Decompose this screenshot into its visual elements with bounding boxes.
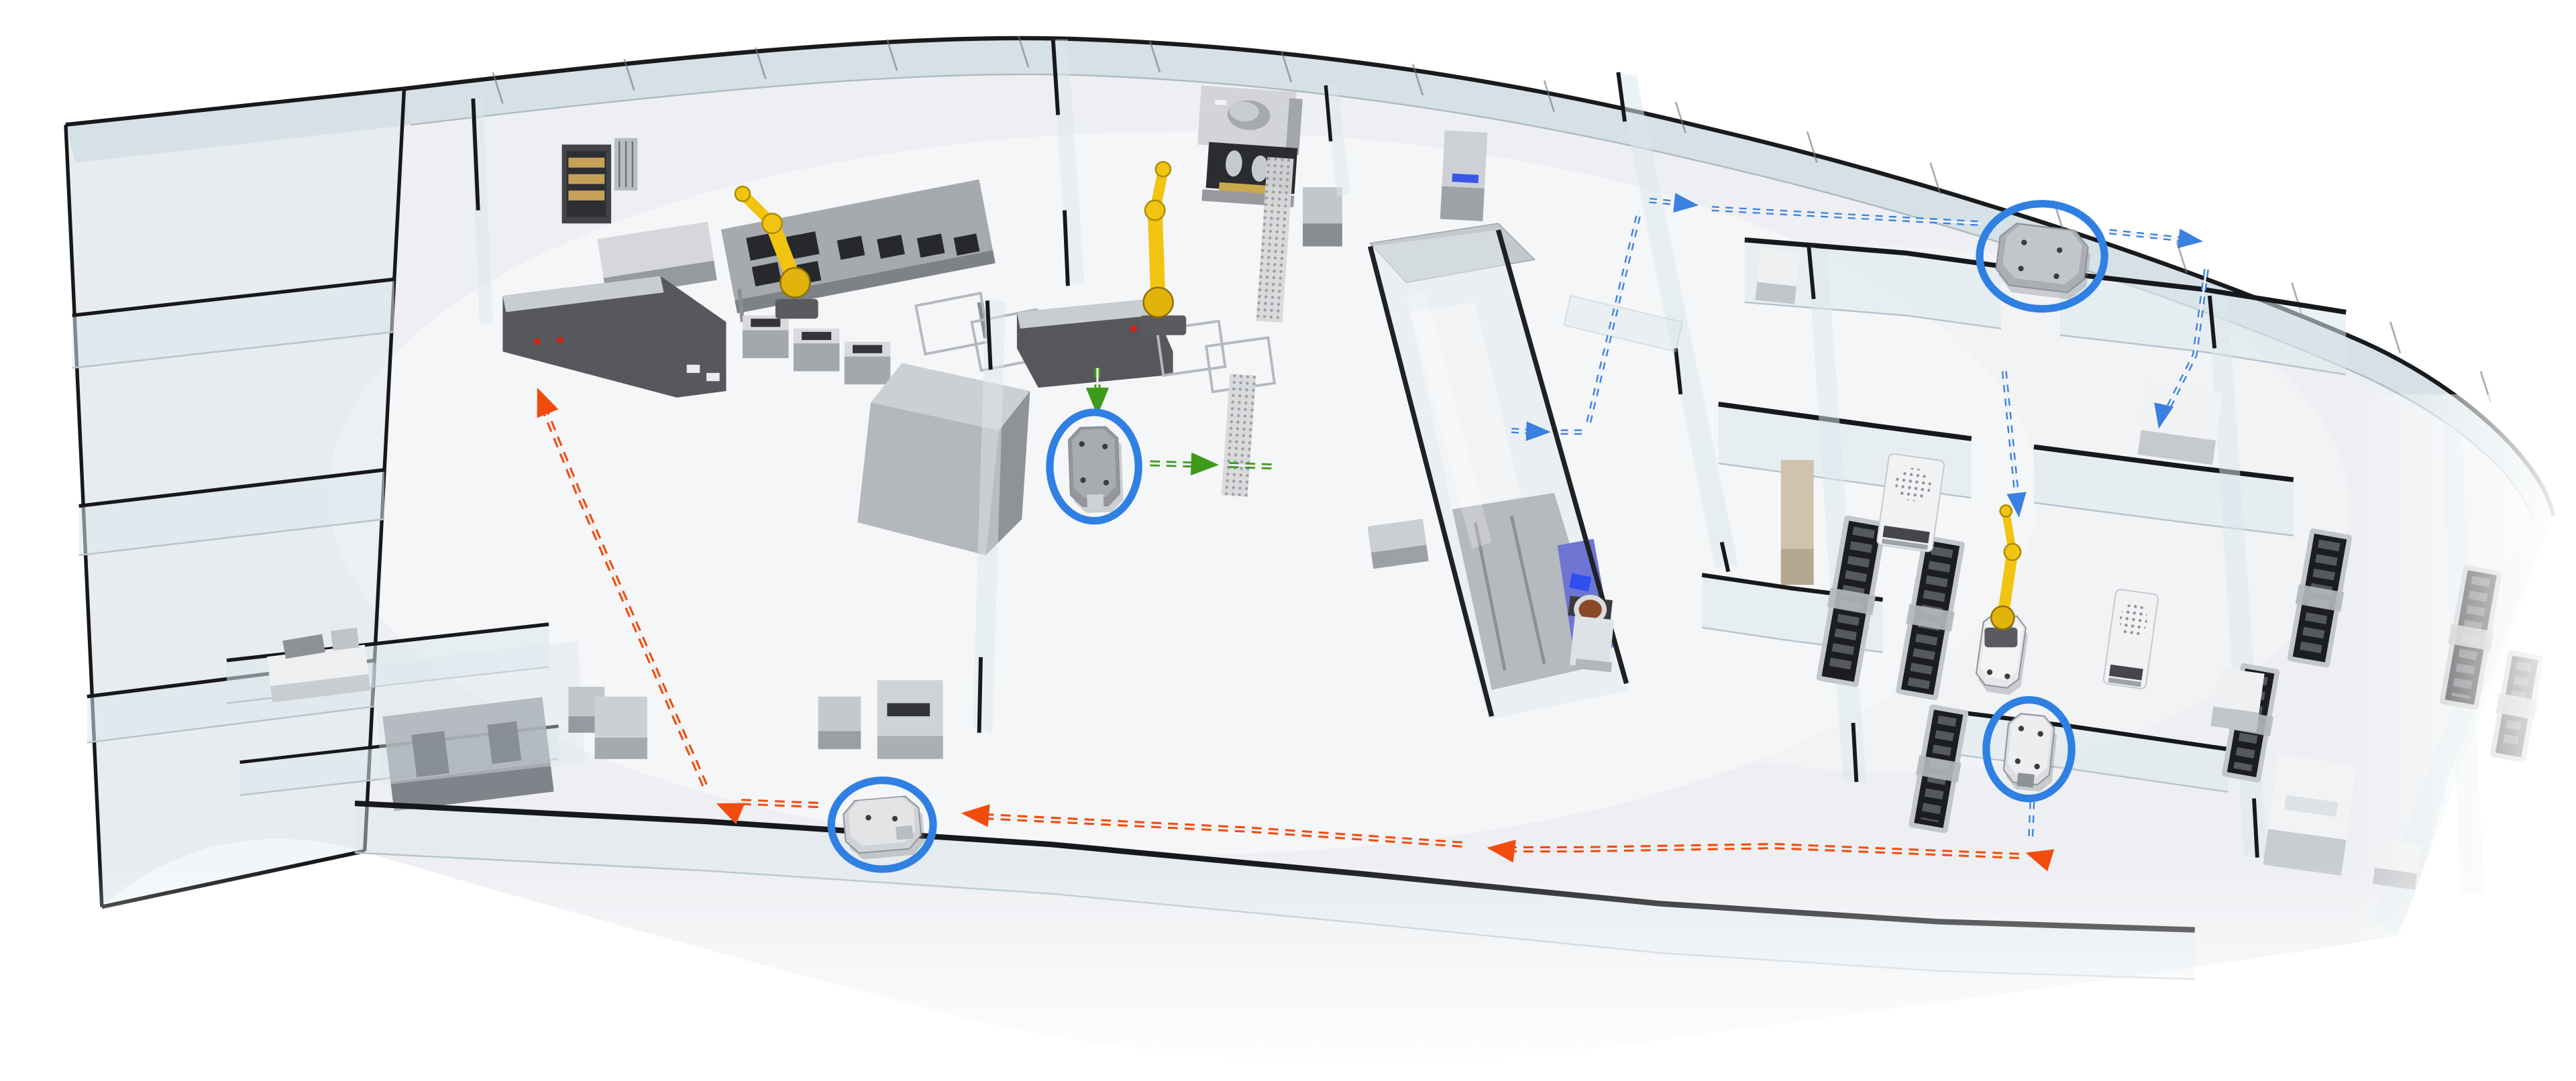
robot-base	[1984, 628, 2017, 647]
bay-machine	[2138, 383, 2223, 465]
bench-instrument	[331, 628, 359, 650]
route-arrowhead	[2178, 229, 2204, 251]
bay-machine	[2263, 754, 2357, 875]
robot-base	[1140, 315, 1187, 335]
robot-joint	[1145, 201, 1165, 220]
box-top	[1757, 248, 1800, 286]
box-front	[794, 343, 840, 372]
side-cabinet	[1303, 187, 1342, 246]
vehicle-dock-plate	[1087, 494, 1104, 510]
robot-shoulder	[780, 268, 810, 297]
box-front	[818, 731, 861, 749]
gold-shelf	[568, 190, 604, 201]
filter-unit	[1876, 453, 1945, 552]
robot-joint	[2004, 544, 2021, 560]
gold-shelf	[568, 158, 604, 168]
box-top	[2214, 667, 2265, 713]
metal-box	[845, 342, 891, 385]
vehicle-dock-plate	[896, 826, 913, 840]
box-front	[1781, 549, 1814, 585]
robot-base	[775, 299, 818, 319]
robot-shoulder	[1143, 288, 1173, 317]
floor-fade-right	[2349, 394, 2576, 953]
box-top	[1781, 460, 1814, 549]
dark-room-glass-front	[374, 640, 584, 785]
facility-scene	[0, 0, 2576, 1081]
corridor-machine	[818, 697, 861, 749]
box-slot	[802, 332, 831, 340]
central-floor-agv	[1068, 426, 1124, 514]
bay-machine	[1755, 248, 1800, 304]
box-front	[1303, 223, 1342, 246]
stocker-port-box	[1367, 519, 1428, 569]
box-slot	[853, 345, 882, 353]
robot-joint	[2000, 505, 2012, 516]
box-front	[743, 330, 789, 358]
beige-cabinet	[1781, 460, 1814, 585]
route-dash-split	[2109, 231, 2188, 239]
box-front	[595, 738, 647, 759]
box-front	[1440, 186, 1485, 221]
box-top	[818, 697, 861, 731]
overhead-shuttle-left	[843, 795, 926, 860]
bench-label	[706, 373, 720, 381]
bench-label	[687, 365, 700, 373]
status-lamp-red	[557, 337, 563, 343]
vehicle-top	[847, 796, 916, 847]
gold-shelf	[568, 174, 604, 184]
box-top	[2268, 754, 2357, 840]
inspection-lens	[1578, 600, 1601, 619]
metal-box	[794, 329, 840, 372]
vehicle-dock-plate	[2017, 773, 2034, 787]
loader-vent	[1215, 100, 1227, 106]
robot-shoulder	[1991, 606, 2014, 629]
metal-box	[743, 315, 789, 358]
corridor-machine	[877, 680, 943, 759]
control-cabinet-screen	[1452, 174, 1479, 183]
box-front	[845, 357, 891, 385]
status-lamp-red	[534, 339, 541, 345]
vehicle-top	[2001, 223, 2084, 286]
page: { "canvas": {"width": 3840, "height": 16…	[0, 0, 2576, 1081]
floor-fade-bottom	[0, 862, 2576, 1081]
box-slot	[751, 319, 780, 327]
corridor-machine	[595, 697, 647, 759]
vehicle-top	[2006, 714, 2052, 777]
robot-joint	[1156, 162, 1171, 176]
robot-joint	[735, 186, 750, 201]
robot-joint	[762, 213, 782, 233]
facility-3d-render	[0, 0, 2576, 1081]
box-top	[1303, 187, 1342, 223]
floor-agv-right	[2002, 712, 2059, 793]
vehicle-top	[1072, 429, 1117, 498]
box-slot	[887, 703, 930, 717]
box-front	[877, 736, 943, 759]
status-lamp-red	[1130, 325, 1137, 332]
box-top	[595, 697, 647, 738]
bay-machine	[2210, 667, 2264, 732]
